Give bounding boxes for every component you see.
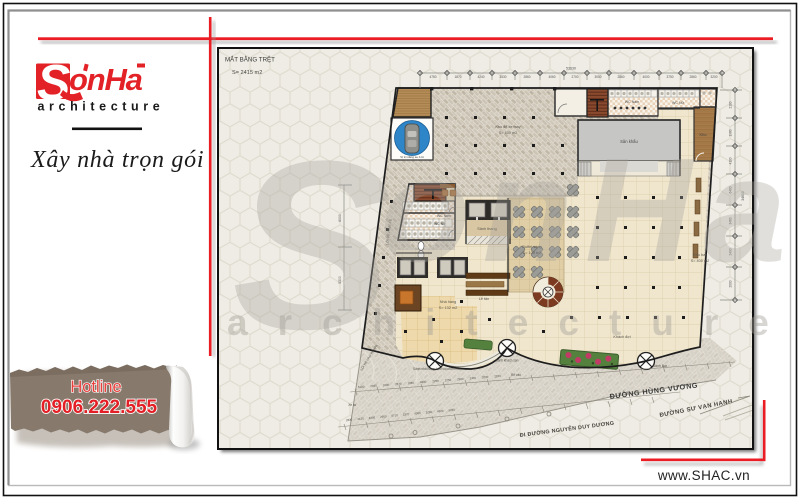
svg-text:2860: 2860 <box>689 75 696 79</box>
svg-text:WC Nữ: WC Nữ <box>672 101 685 105</box>
svg-text:3200: 3200 <box>710 75 717 79</box>
svg-text:4240: 4240 <box>477 75 484 79</box>
svg-text:Sảnh nhà hàng, khu vui chơi nh: Sảnh nhà hàng, khu vui chơi nhỏ <box>413 367 460 371</box>
svg-text:4750: 4750 <box>429 75 436 79</box>
svg-text:architecture: architecture <box>227 302 799 343</box>
svg-text:Sảnh Bar: Sảnh Bar <box>653 364 668 368</box>
svg-text:Hotline: Hotline <box>70 378 121 396</box>
svg-text:Rẽ vào: Rẽ vào <box>511 373 521 377</box>
svg-text:WC Nam: WC Nam <box>625 100 640 104</box>
svg-text:2860: 2860 <box>523 75 530 79</box>
svg-text:3530: 3530 <box>499 75 506 79</box>
svg-text:1870: 1870 <box>454 75 461 79</box>
svg-text:0906.222.555: 0906.222.555 <box>41 397 158 418</box>
svg-text:53630: 53630 <box>566 67 576 71</box>
svg-text:architecture: architecture <box>38 100 165 114</box>
svg-text:onHa: onHa <box>69 62 143 97</box>
svg-text:Lễ tân: Lễ tân <box>479 296 490 301</box>
svg-text:3050: 3050 <box>594 75 601 79</box>
svg-text:Xây nhà trọn gói: Xây nhà trọn gói <box>30 147 204 173</box>
svg-text:4060: 4060 <box>548 75 555 79</box>
svg-text:Sảnh khách sạn: Sảnh khách sạn <box>496 359 519 363</box>
svg-text:2860: 2860 <box>617 75 624 79</box>
svg-text:www.SHAC.vn: www.SHAC.vn <box>657 468 750 483</box>
svg-text:2100: 2100 <box>729 101 733 108</box>
svg-text:MẮT BẰNG TRỆT: MẮT BẰNG TRỆT <box>225 56 275 64</box>
svg-text:S= 2415 m2: S= 2415 m2 <box>232 70 262 76</box>
svg-text:4000: 4000 <box>642 75 649 79</box>
svg-text:Xe ra: Xe ra <box>348 403 356 407</box>
svg-text:3750: 3750 <box>666 75 673 79</box>
svg-text:onHa: onHa <box>380 128 798 293</box>
svg-text:2700: 2700 <box>571 75 578 79</box>
